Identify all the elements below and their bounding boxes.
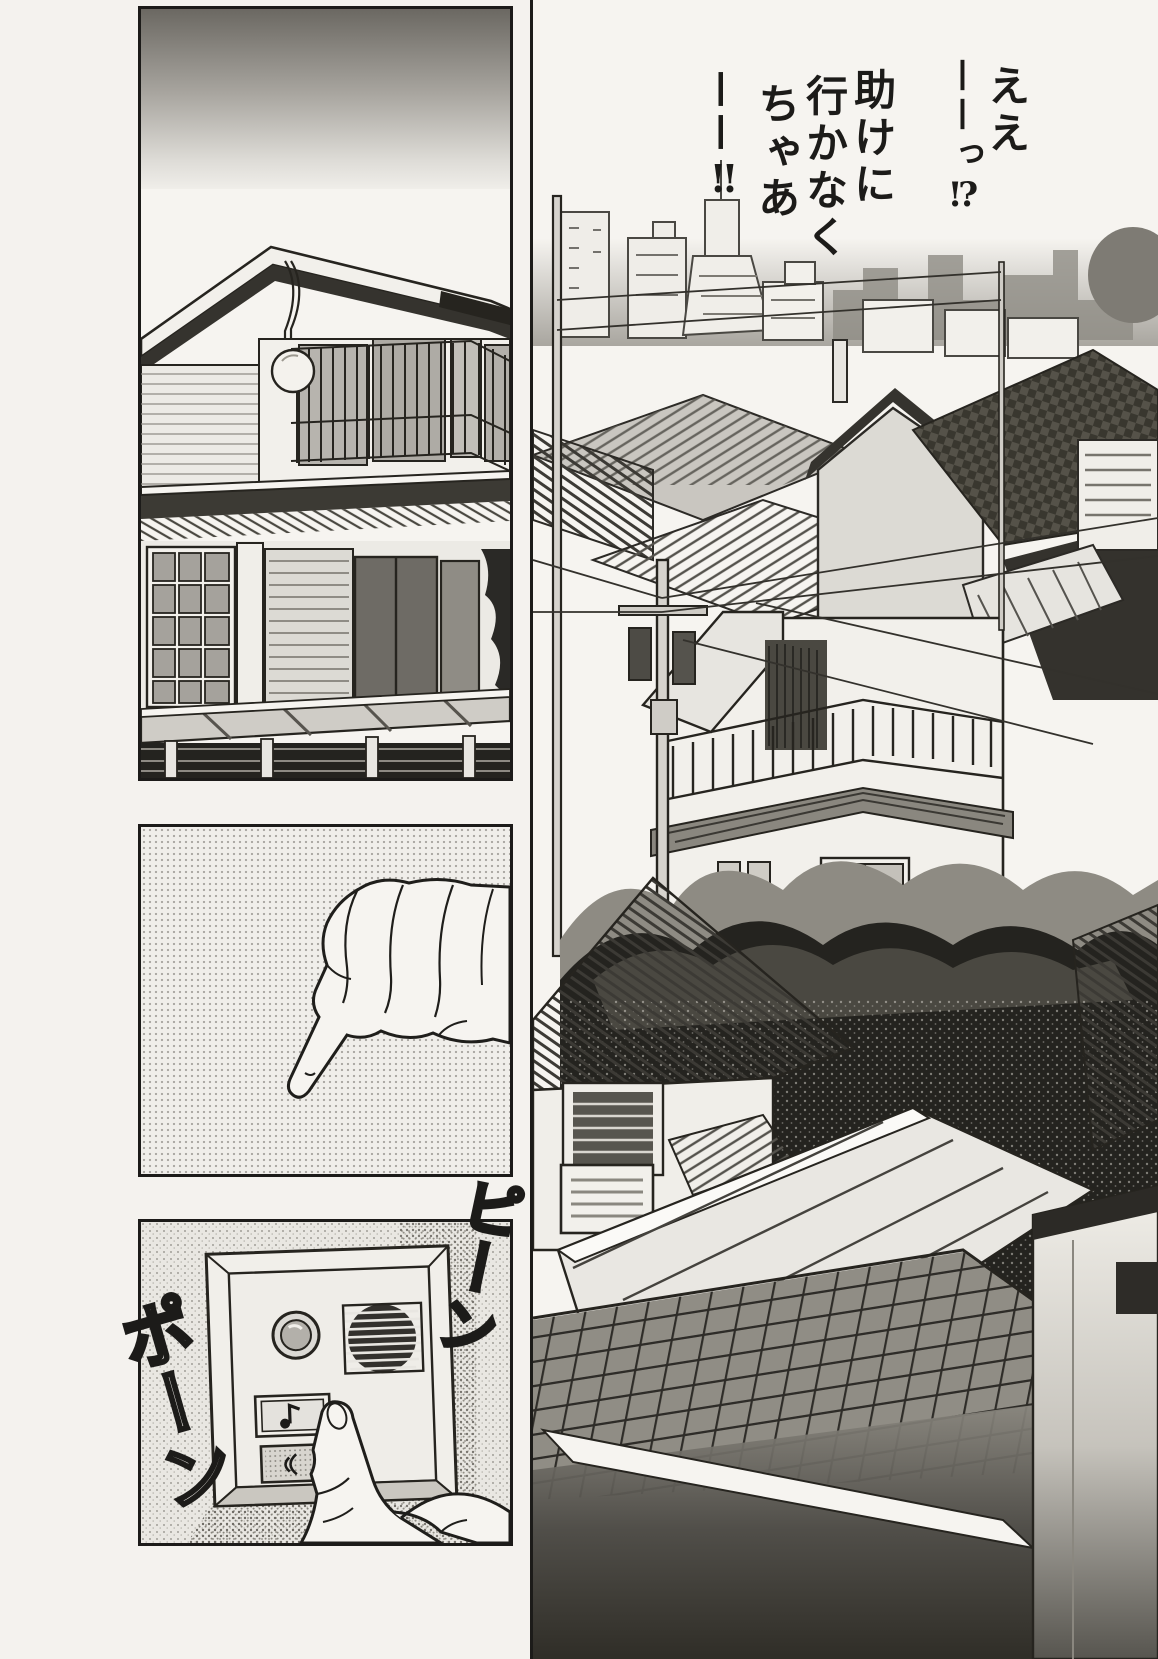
right-wall: [1033, 1186, 1158, 1659]
dialogue-col-4: 行かなく: [802, 74, 846, 262]
balcony: [291, 339, 510, 471]
dialogue-col-1: ええ: [984, 64, 1028, 158]
manga-page: ええ ——っ⁉ 助けに 行かなく ちゃあ ——‼ ピーン ポーン: [0, 0, 1158, 1659]
dialogue-col-5: ちゃあ: [754, 82, 798, 223]
panel-pointing-hand: [138, 824, 513, 1177]
dialogue-col-3: 助けに: [850, 68, 894, 209]
porch-lamp: [272, 350, 314, 392]
camera-lens-icon: [272, 1311, 320, 1359]
house-art: [141, 9, 510, 778]
dialogue-col-2: ——っ⁉: [946, 58, 981, 220]
hand-art: [141, 827, 510, 1174]
ground-floor: [141, 541, 510, 713]
dialogue-col-6: ——‼: [704, 70, 744, 206]
panel-house-exterior: [138, 6, 513, 781]
